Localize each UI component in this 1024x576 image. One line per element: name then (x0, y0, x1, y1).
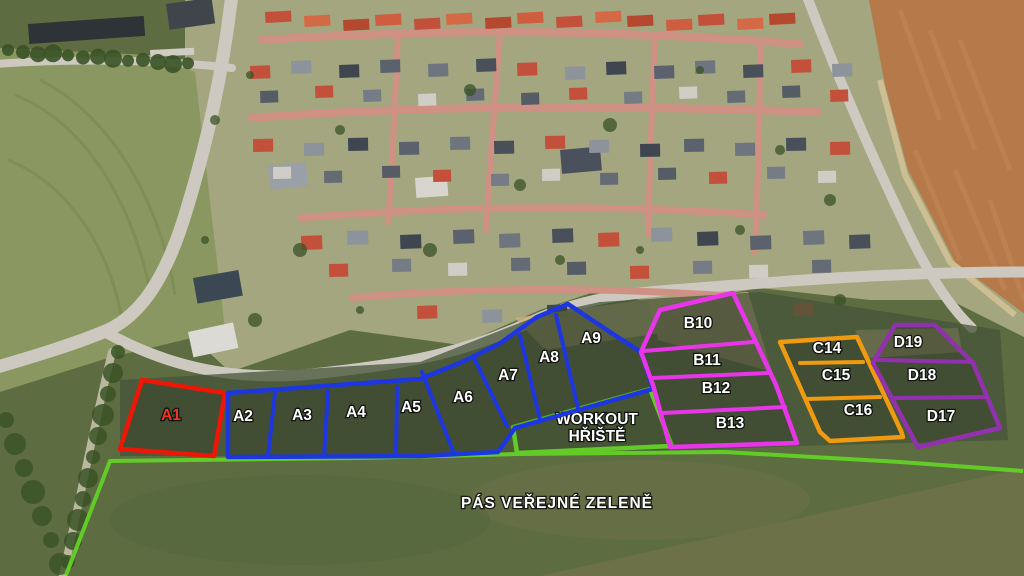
building (253, 139, 273, 152)
building (640, 144, 660, 157)
parcel-divider (800, 362, 863, 363)
tree (696, 66, 704, 74)
parcel-label-C15: C15 (822, 367, 851, 384)
building (380, 59, 400, 73)
building (382, 166, 400, 178)
building (750, 235, 771, 250)
parcel-label-A9: A9 (581, 330, 601, 347)
building (399, 142, 419, 155)
building (666, 19, 693, 31)
building (521, 92, 539, 105)
tree (76, 51, 90, 65)
building (511, 258, 530, 271)
green-belt-label: PÁS VEŘEJNÉ ZELENĚ (461, 494, 653, 512)
tree (111, 345, 125, 359)
parcel-label-A6: A6 (453, 389, 473, 406)
building (485, 17, 512, 29)
building (679, 86, 697, 99)
building (743, 64, 763, 78)
tree (464, 84, 476, 96)
satellite-photo-layer (0, 0, 1024, 576)
building (786, 138, 806, 151)
building (658, 168, 676, 180)
building (400, 234, 421, 249)
tree (104, 50, 122, 68)
tree (293, 243, 307, 257)
building (414, 18, 441, 30)
building (499, 233, 520, 248)
building (556, 16, 583, 28)
building (769, 13, 796, 25)
building (606, 61, 626, 75)
building (630, 266, 649, 279)
building (849, 234, 870, 249)
tree (62, 49, 74, 61)
building (453, 229, 474, 244)
parcel-label-A3: A3 (292, 407, 312, 424)
aerial-map: PÁS VEŘEJNÉ ZELENĚWORKOUTHŘIŠTĚA1A2A3A4A… (0, 0, 1024, 576)
tree (182, 57, 194, 69)
building (446, 13, 473, 25)
tree (210, 115, 220, 125)
building (589, 140, 609, 153)
building (433, 170, 451, 182)
building (491, 174, 509, 186)
parcel-label-A8: A8 (539, 349, 559, 366)
tree (32, 506, 52, 526)
tree (2, 44, 14, 56)
parcel-label-B10: B10 (684, 315, 712, 332)
parcel-label-B11: B11 (693, 352, 721, 369)
tree (90, 49, 106, 65)
parcel-divider (877, 360, 973, 362)
parcel-label-A4: A4 (346, 404, 366, 421)
tree (92, 404, 114, 426)
tree (335, 125, 345, 135)
building (782, 85, 800, 98)
building (684, 139, 704, 152)
building (482, 309, 502, 323)
building (791, 59, 811, 73)
building (324, 171, 342, 183)
building (709, 172, 727, 184)
parcel-label-A1: A1 (161, 407, 181, 424)
tree (824, 194, 836, 206)
building (830, 142, 850, 155)
building (830, 89, 848, 102)
building (600, 173, 618, 185)
tree (122, 55, 134, 67)
building (363, 89, 381, 102)
tree (735, 225, 745, 235)
building (260, 90, 278, 103)
parcel-label-D17: D17 (927, 408, 955, 425)
tree (603, 118, 617, 132)
tree (248, 313, 262, 327)
meadow-texture (110, 475, 490, 565)
parcel-label-D18: D18 (908, 367, 937, 384)
building (265, 11, 292, 23)
tree (246, 71, 254, 79)
building (545, 136, 565, 149)
tree (21, 480, 45, 504)
building (417, 305, 437, 319)
tree (44, 44, 62, 62)
building (450, 137, 470, 150)
building (803, 230, 824, 245)
building (735, 143, 755, 156)
tree (356, 306, 364, 314)
parcel-label-A7: A7 (498, 367, 518, 384)
building (517, 12, 544, 24)
building (494, 141, 514, 154)
parcel-label-A5: A5 (401, 399, 421, 416)
building (348, 138, 368, 151)
parcel-label-A2: A2 (233, 408, 253, 425)
building (567, 262, 586, 275)
building (552, 228, 573, 243)
tree (555, 255, 565, 265)
parcel-label-C16: C16 (844, 402, 873, 419)
workout-area-label: HŘIŠTĚ (569, 427, 626, 445)
building (304, 15, 331, 27)
scene-svg: PÁS VEŘEJNÉ ZELENĚWORKOUTHŘIŠTĚA1A2A3A4A… (0, 0, 1024, 576)
building (304, 143, 324, 156)
building (347, 230, 368, 245)
building (339, 64, 359, 78)
tree (636, 246, 644, 254)
building (392, 259, 411, 272)
building (693, 261, 712, 274)
tree (78, 468, 98, 488)
building (273, 167, 291, 179)
parcel-label-D19: D19 (894, 334, 923, 351)
building (697, 231, 718, 246)
building (598, 232, 619, 247)
tree (15, 459, 33, 477)
parcel-divider (807, 397, 880, 399)
building (654, 65, 674, 79)
building (375, 14, 402, 26)
parcel-label-C14: C14 (813, 340, 842, 357)
tree (423, 243, 437, 257)
building (832, 63, 852, 77)
building (698, 14, 725, 26)
building (727, 90, 745, 103)
building (448, 263, 467, 276)
tree (775, 145, 785, 155)
building (291, 60, 311, 74)
building (569, 87, 587, 100)
tree (16, 45, 30, 59)
tree (514, 179, 526, 191)
tree (201, 236, 209, 244)
building (767, 167, 785, 179)
tree (75, 491, 91, 507)
building (329, 264, 348, 277)
tree (150, 54, 166, 70)
building (651, 227, 672, 242)
building (428, 63, 448, 77)
building (476, 58, 496, 72)
tree (43, 532, 59, 548)
building (812, 260, 831, 273)
building (565, 66, 585, 80)
tree (136, 53, 150, 67)
tree (86, 450, 100, 464)
parcel-divider (895, 397, 987, 398)
parcel-label-B13: B13 (716, 415, 745, 432)
building (542, 169, 560, 181)
tree (164, 55, 182, 73)
building (418, 93, 436, 106)
building (343, 19, 370, 31)
tree (30, 46, 46, 62)
tree (89, 427, 107, 445)
tree (100, 386, 116, 402)
building (737, 18, 764, 30)
building (749, 265, 768, 278)
building (627, 15, 654, 27)
building (624, 91, 642, 104)
parcel-label-B12: B12 (702, 380, 730, 397)
building (517, 62, 537, 76)
building (595, 11, 622, 23)
tree (4, 433, 26, 455)
parcel-divider (396, 387, 397, 455)
building (818, 171, 836, 183)
building (315, 85, 333, 98)
